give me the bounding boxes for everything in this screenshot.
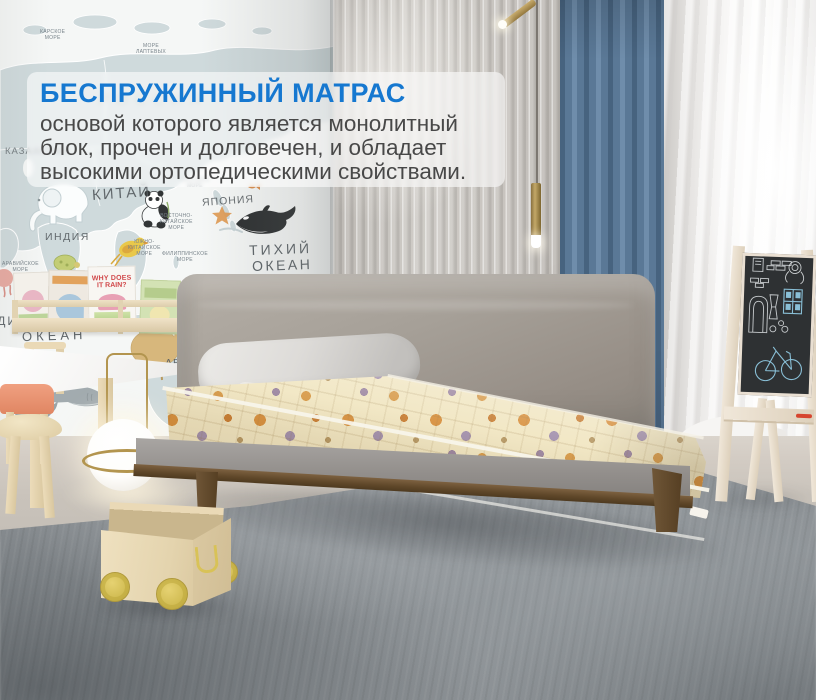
blackboard (738, 253, 816, 397)
cup (544, 334, 564, 347)
promo-title: БЕСПРУЖИННЫЙ МАТРАС (40, 78, 505, 109)
cart-wheel (156, 578, 188, 610)
red-chalk (796, 414, 812, 419)
pendant-lamp (531, 183, 541, 237)
cart-rope-handle (195, 545, 220, 574)
wall-corner-shadow (330, 0, 338, 446)
promo-text-overlay: БЕСПРУЖИННЫЙ МАТРАС основой которого явл… (27, 72, 505, 187)
chalk-drawings (739, 254, 812, 392)
nightstand (468, 256, 668, 446)
promo-body-line-2: блок, прочен и долговечен, и обладает (40, 136, 505, 160)
promo-body-line-1: основой которого является монолитный (40, 112, 505, 136)
kids-bedroom-product-photo: РОССИЯ КАЗАХСТАН КИТАЙ ЯПОНИЯ ИНДИЯ АВСТ… (0, 0, 816, 700)
shelf-top-rail (12, 300, 368, 307)
chalkboard-easel (700, 240, 816, 510)
vase-branches (468, 258, 628, 344)
stool-seat (0, 414, 62, 440)
cart-wheel (100, 572, 130, 602)
pendant-lamp-glow (531, 235, 541, 248)
lamp-brass-ring (82, 449, 172, 473)
nightstand-recess (537, 366, 601, 444)
ceiling-rod-lamp-glow (498, 20, 507, 29)
promo-body-line-3: высокими ортопедическими свойствами. (40, 160, 505, 184)
book-title-2: IT RAIN? (88, 282, 136, 290)
pendant-cable (536, 0, 538, 185)
promo-body: основой которого является монолитный бло… (40, 112, 505, 184)
toy-cart (92, 498, 242, 618)
wall-bookshelf: WHY DOES IT RAIN? (12, 260, 368, 348)
shelf-bottom-rail (12, 318, 368, 332)
chair-seat (0, 384, 54, 414)
